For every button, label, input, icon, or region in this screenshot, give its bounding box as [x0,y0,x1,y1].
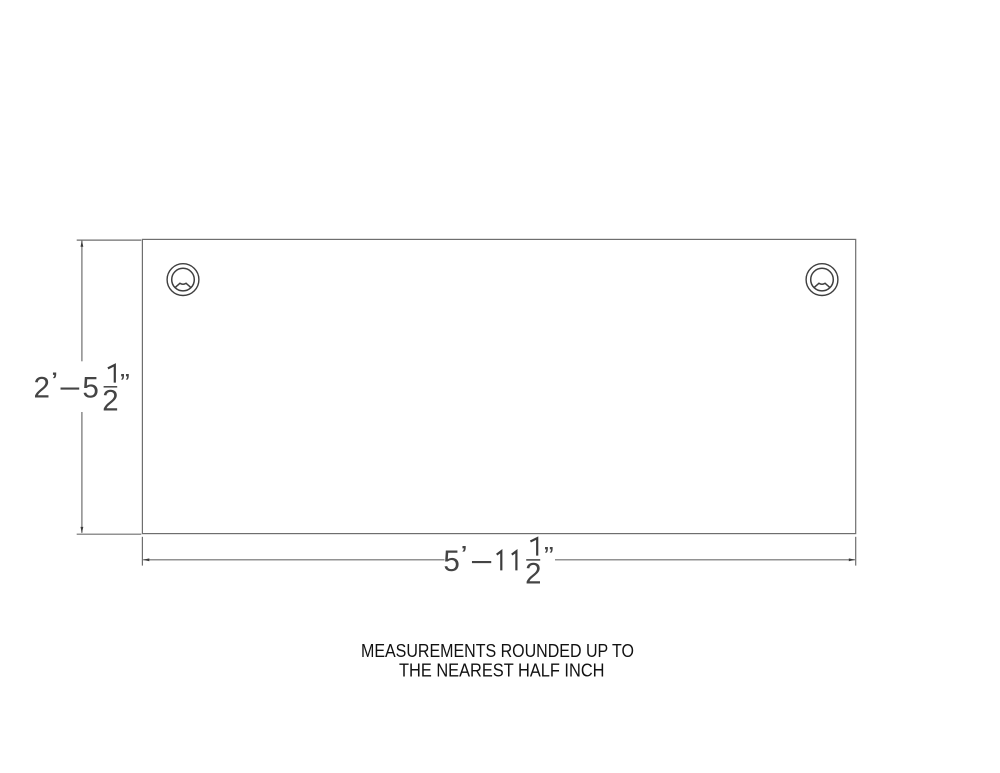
svg-text:’: ’ [460,542,468,570]
svg-text:2: 2 [525,558,541,591]
svg-text:−: − [470,546,493,579]
svg-text:2: 2 [102,384,118,417]
svg-text:”: ” [120,368,130,396]
svg-text:5: 5 [443,545,459,578]
svg-text:2: 2 [34,372,50,405]
svg-text:’: ’ [51,368,59,396]
svg-text:−: − [59,373,81,406]
svg-text:”: ” [544,542,554,570]
svg-text:5: 5 [82,372,98,405]
svg-text:MEASUREMENTS ROUNDED UP TO: MEASUREMENTS ROUNDED UP TO [361,640,634,661]
svg-text:THE NEAREST HALF INCH: THE NEAREST HALF INCH [399,660,605,681]
